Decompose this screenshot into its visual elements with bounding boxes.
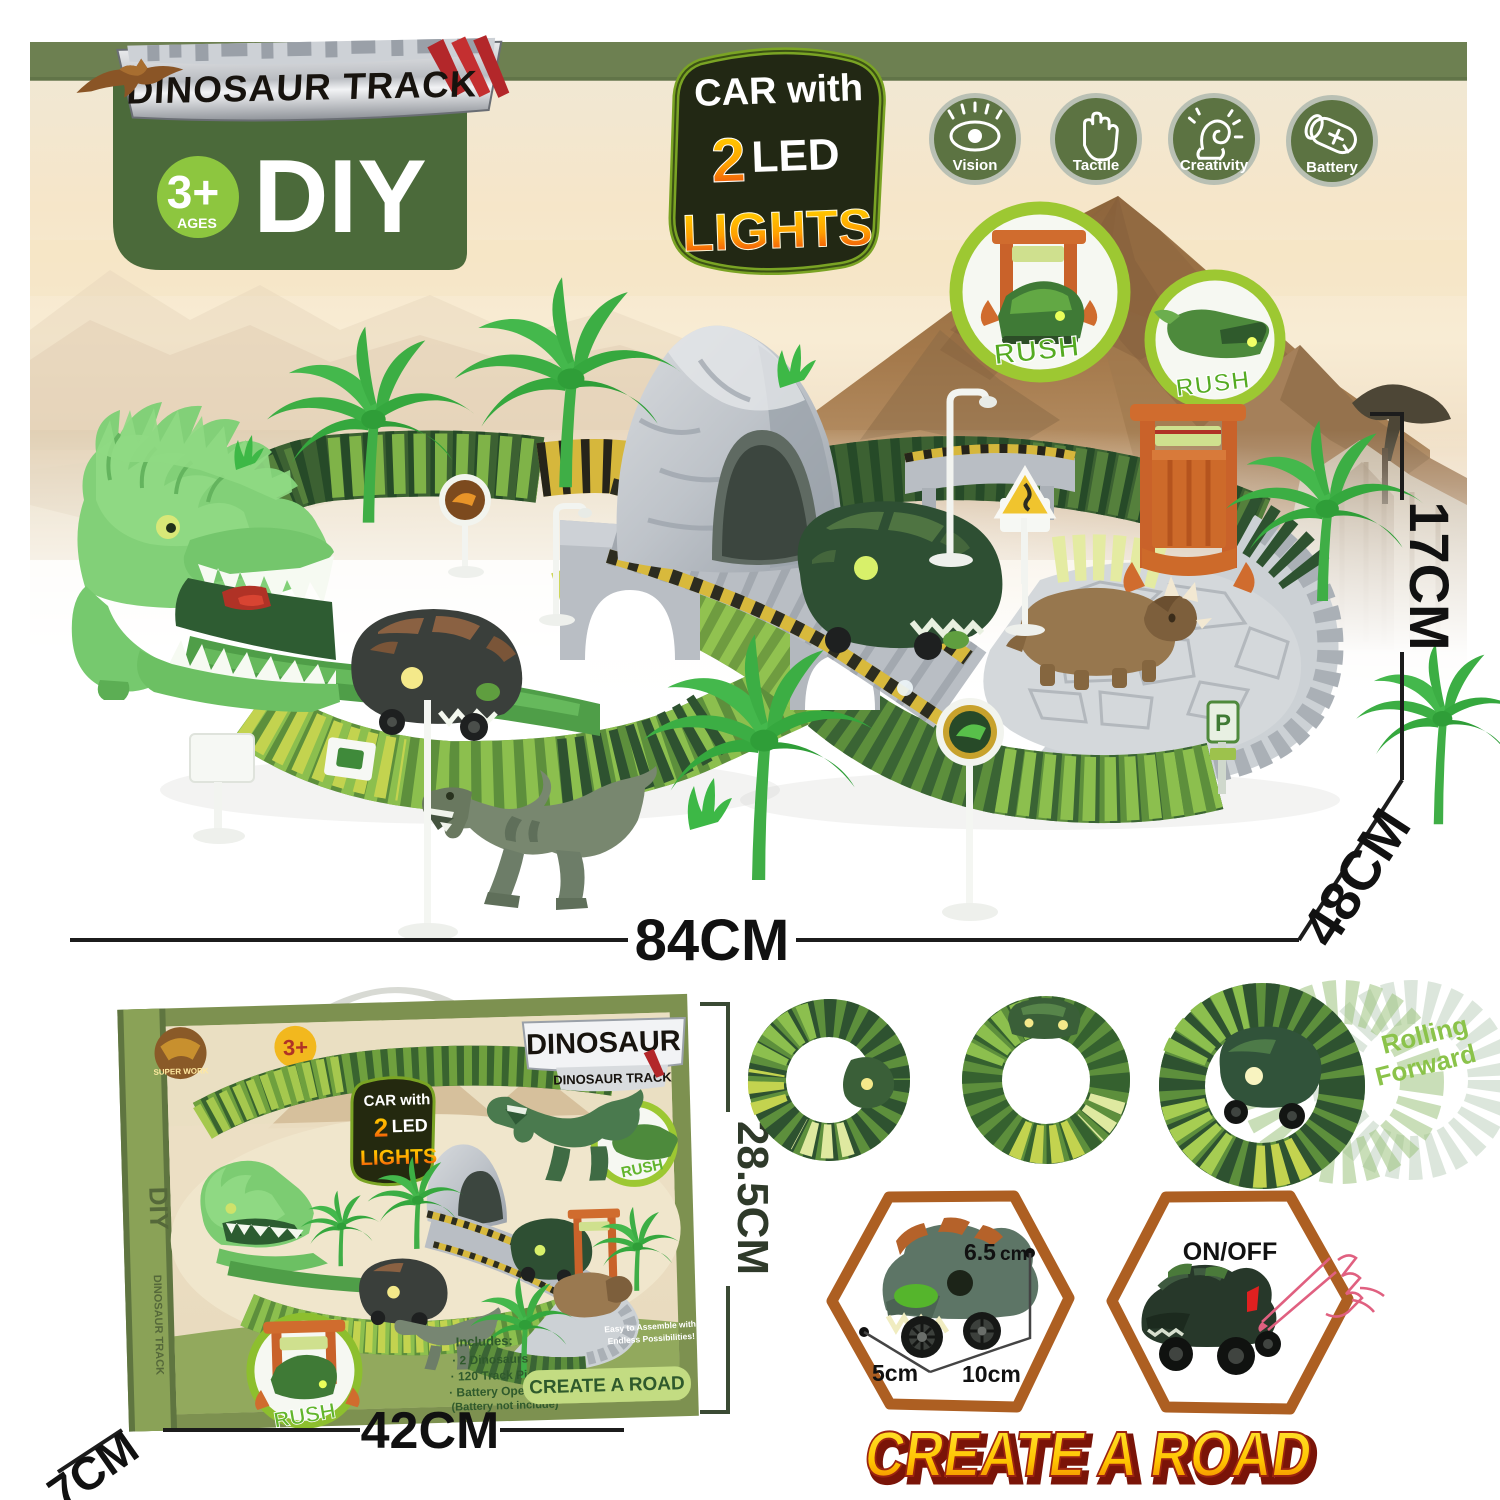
svg-text:Vision: Vision [953, 157, 998, 174]
svg-text:LIGHTS: LIGHTS [360, 1145, 438, 1170]
svg-text:ON/OFF: ON/OFF [1183, 1238, 1277, 1266]
svg-text:SUPER WORK: SUPER WORK [153, 1066, 209, 1077]
svg-text:17CM: 17CM [1398, 501, 1461, 650]
svg-text:LED: LED [751, 130, 841, 182]
svg-text:cm: cm [1000, 1244, 1027, 1265]
svg-text:DINOSAUR: DINOSAUR [526, 1025, 682, 1061]
svg-text:CAR with: CAR with [693, 67, 863, 115]
svg-text:CAR with: CAR with [363, 1091, 430, 1110]
svg-text:CREATE A ROAD: CREATE A ROAD [529, 1373, 685, 1398]
svg-text:Battery: Battery [1306, 159, 1358, 176]
svg-text:2: 2 [373, 1112, 388, 1142]
svg-text:5cm: 5cm [872, 1360, 918, 1386]
svg-text:· 2 Dinosaurs: · 2 Dinosaurs [452, 1351, 529, 1367]
svg-text:3+: 3+ [167, 166, 219, 218]
svg-text:3+: 3+ [283, 1035, 309, 1061]
svg-text:DIY: DIY [143, 1186, 174, 1230]
svg-text:42CM: 42CM [361, 1402, 500, 1460]
svg-text:CREATE A ROAD: CREATE A ROAD [861, 1418, 1317, 1490]
svg-text:AGES: AGES [177, 215, 217, 231]
svg-text:LIGHTS: LIGHTS [681, 199, 874, 264]
svg-text:10cm: 10cm [962, 1361, 1021, 1387]
svg-text:LED: LED [391, 1115, 428, 1136]
svg-text:Creativity: Creativity [1180, 157, 1249, 174]
svg-text:Includes:: Includes: [455, 1333, 512, 1350]
svg-text:6.5: 6.5 [964, 1239, 996, 1265]
svg-text:2: 2 [710, 126, 747, 196]
svg-text:DIY: DIY [253, 139, 426, 255]
svg-text:28.5CM: 28.5CM [728, 1121, 777, 1275]
svg-text:Tactile: Tactile [1073, 157, 1119, 174]
svg-text:84CM: 84CM [635, 908, 790, 973]
svg-text:P: P [1215, 710, 1231, 737]
